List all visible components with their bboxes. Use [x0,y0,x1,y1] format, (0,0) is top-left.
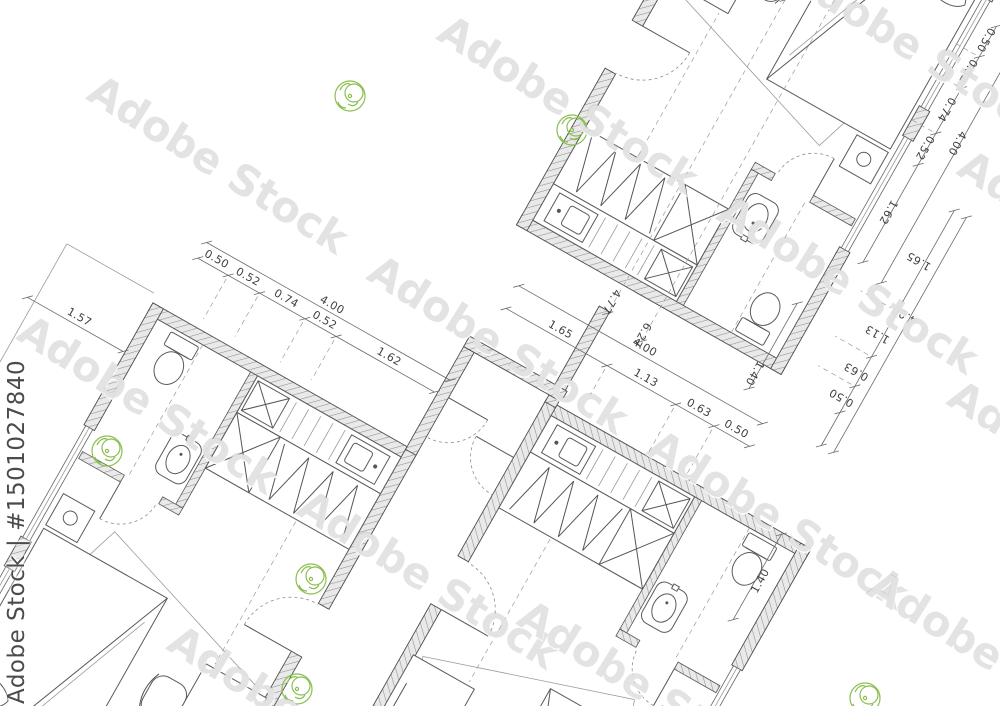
dimension-label: 0.52 [956,57,980,86]
blueprint-canvas: 0.500.520.744.000.521.621.571.654.001.13… [0,0,1000,706]
dimension-label: 4.00 [890,303,919,327]
apartment-unit-bottom-left [0,303,418,706]
corridor-wall [464,336,567,402]
dimension-label: 1.13 [631,366,660,390]
dimension-label: 0.50 [202,247,231,271]
dimension-label: 1.62 [375,345,404,369]
dimension-label: 4.77 [599,287,623,316]
dimension-label: 0.74 [272,286,301,310]
dimension-label: 1.65 [904,249,933,273]
dimension-label: 4.00 [945,129,969,158]
corridor-wall [406,347,475,456]
adobe-stock-watermark: Adobe Stock | #1501027840 [4,360,30,704]
dimension-label: 0.52 [234,265,263,289]
dimension-label: 1.13 [863,322,892,346]
dimension-label: 0.74 [934,95,958,124]
dimension-label: 0.50 [974,25,998,54]
dimension-label: 0.63 [842,360,871,384]
dimension-label: 1.62 [876,198,900,227]
dimension-label: 1.57 [65,305,94,329]
dimension-label: 0.50 [722,417,751,441]
apartment-unit-top [517,0,1000,374]
dimension-label: 0.52 [913,133,937,162]
dimension-label: 0.63 [684,396,713,420]
dimension-label: 0.50 [827,386,856,410]
dimension-label: 1.65 [546,318,575,342]
dimension-label: 1.40 [743,359,767,388]
floor-plan-drawing: 0.500.520.744.000.521.621.571.654.001.13… [0,0,1000,706]
